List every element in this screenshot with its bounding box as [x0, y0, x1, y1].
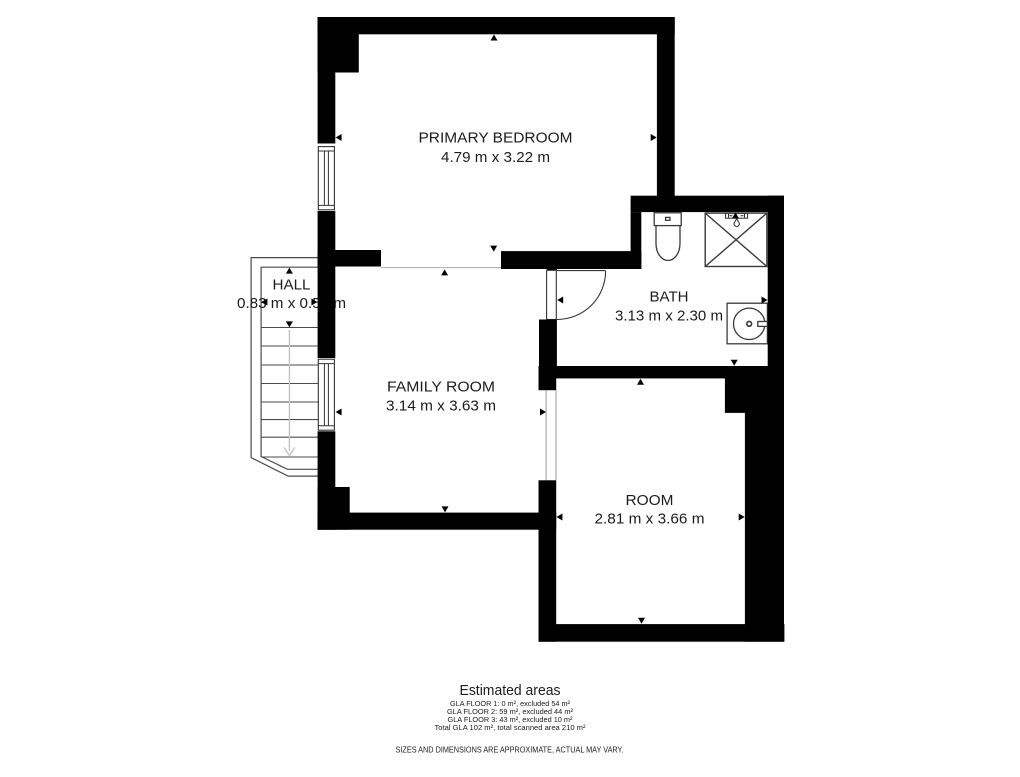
svg-text:3.14 m x 3.63 m: 3.14 m x 3.63 m — [386, 397, 496, 414]
svg-text:Estimated areas: Estimated areas — [460, 683, 561, 699]
svg-text:3.13 m x 2.30 m: 3.13 m x 2.30 m — [615, 308, 723, 325]
svg-text:Total GLA 102 m², total scanne: Total GLA 102 m², total scanned area 210… — [435, 723, 586, 732]
svg-text:PRIMARY BEDROOM: PRIMARY BEDROOM — [419, 130, 573, 147]
svg-text:4.79 m x 3.22 m: 4.79 m x 3.22 m — [441, 149, 550, 166]
svg-text:HALL: HALL — [273, 278, 311, 294]
svg-text:FAMILY ROOM: FAMILY ROOM — [387, 378, 495, 395]
svg-text:ROOM: ROOM — [626, 492, 674, 509]
svg-text:SIZES AND DIMENSIONS ARE APPRO: SIZES AND DIMENSIONS ARE APPROXIMATE, AC… — [396, 745, 624, 755]
svg-text:2.81 m x 3.66 m: 2.81 m x 3.66 m — [595, 511, 705, 528]
svg-text:BATH: BATH — [650, 288, 689, 305]
